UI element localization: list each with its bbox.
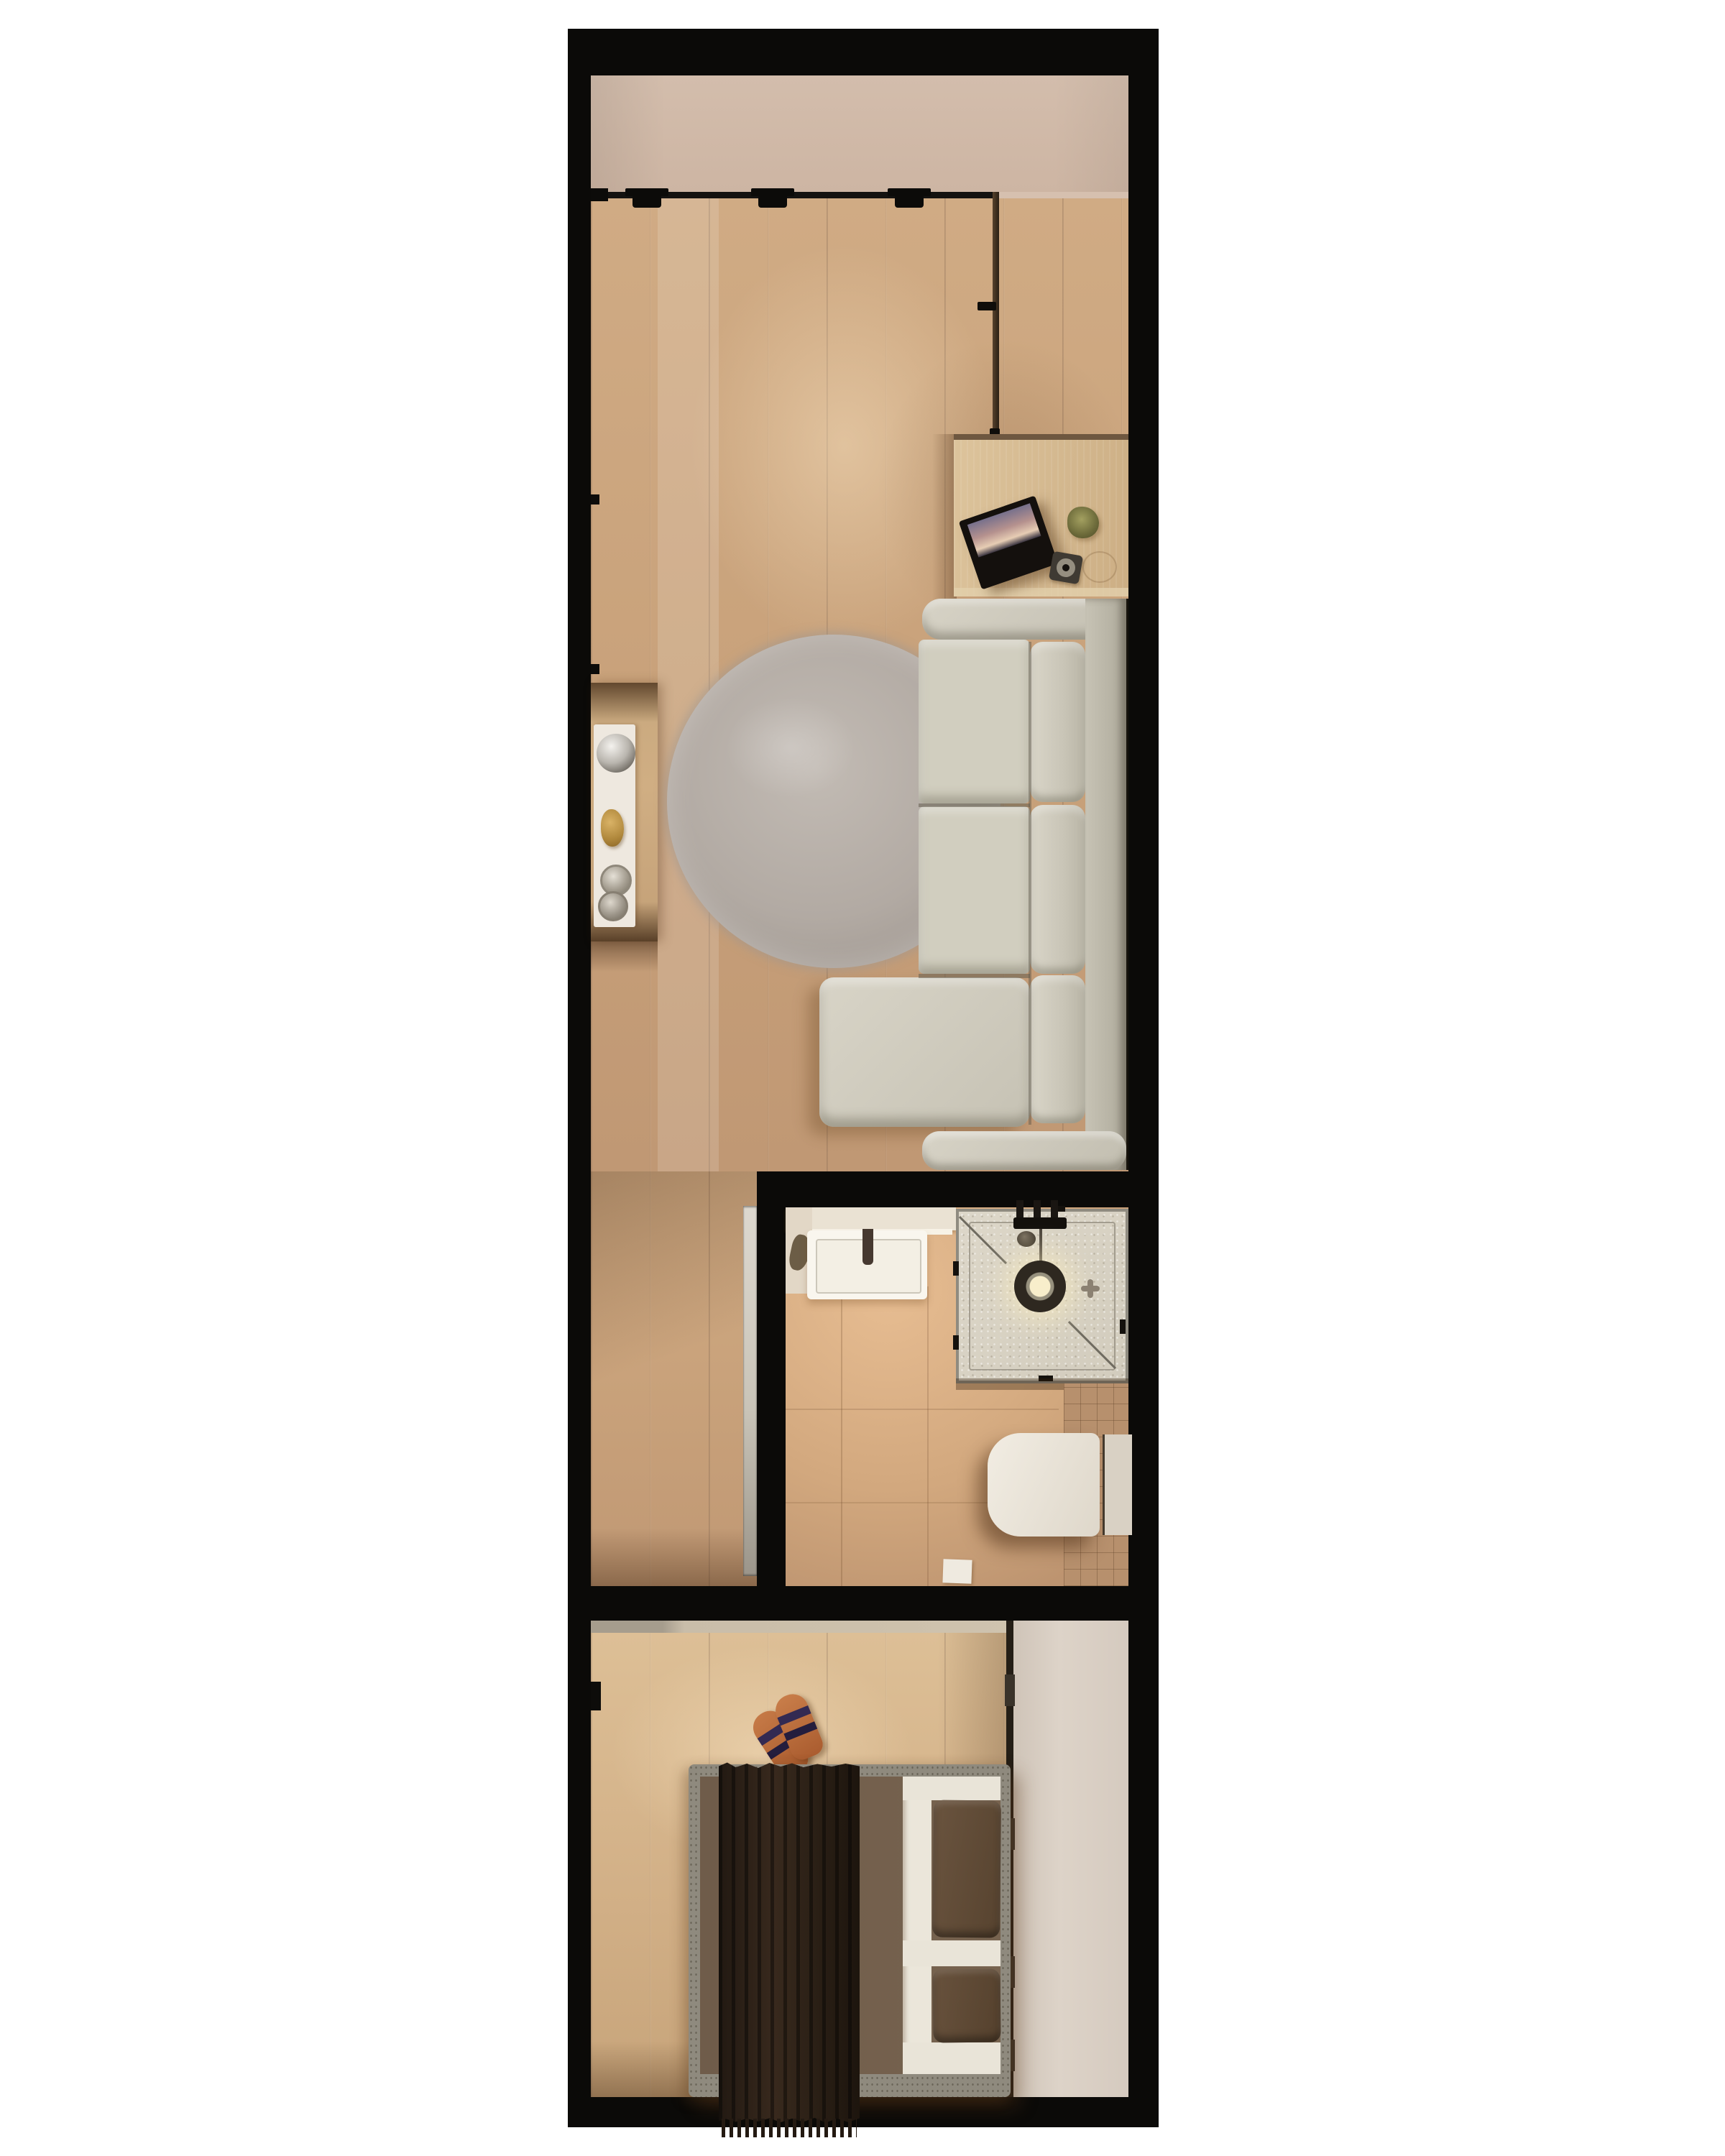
floor-paper [942,1559,972,1583]
wall-pin-icon [591,664,599,674]
table-floor-shadow [932,434,957,625]
sofa-back-pillow [1030,975,1085,1123]
bed-pillow [932,1800,1001,1938]
sofa-seat-cushion [919,640,1030,803]
shower-valve-bar [1013,1217,1067,1229]
mirror-ball-icon [597,734,635,773]
bed-pillow [932,1969,1000,2043]
apartment-plan [568,29,1159,2127]
door-roller-foot [895,196,924,208]
door-handle-icon [977,302,996,310]
door-hinge-icon [591,1682,601,1710]
shower-head-light-icon [1014,1261,1066,1312]
sofa-back-pillow [1030,805,1085,974]
bedroom-threshold [591,1621,1013,1633]
glass-clip-icon [1120,1319,1126,1334]
drain-rosette-icon [1087,1279,1093,1298]
toilet-cistern-panel [1103,1434,1132,1535]
track-end-block [591,188,608,201]
bed-sheet-fold [903,1777,1000,1800]
hallway-shading [591,1171,757,1586]
console-top-shadow [591,683,658,722]
tile-seam [927,1286,929,1586]
glass-icon [598,891,628,921]
floor-plan-canvas [0,0,1725,2156]
bed-sheet-fold [903,2042,1000,2074]
door-roller-foot [758,196,787,208]
slipper-strap [777,1705,811,1726]
sofa-back-pillow [1030,642,1085,802]
sofa-chaise-cushion [819,977,1030,1127]
tile-seam [841,1286,842,1586]
dried-plant-icon [1067,507,1099,538]
shower-valve-stem [1051,1200,1058,1219]
sofa-cushion-seam [919,974,1030,978]
side-table-edge [954,434,1128,440]
balcony-zone-shading [591,75,1128,192]
sofa-back-seam [1029,642,1031,1125]
sofa-armrest-bottom [922,1131,1126,1170]
door-leaf-edge [993,192,999,434]
bed-sheet-band [903,1777,931,2074]
shower-knob-icon [1017,1231,1036,1247]
coaster [1049,551,1083,585]
sofa-cushion-seam [919,803,1030,807]
table-stain [1082,551,1117,583]
throw-blanket [719,1761,860,2124]
door-roller-foot [632,196,661,208]
wardrobe-hinge-icon [1005,1674,1015,1706]
door-roller-icon [888,188,931,196]
slipper-strap [783,1721,817,1741]
rug-sheen [726,697,855,798]
sink-faucet-icon [862,1229,873,1265]
tile-seam [786,1409,1059,1410]
shower-valve-stem [1034,1200,1041,1219]
bed-sheet-fold [903,1940,1000,1966]
glass-clip-icon [953,1261,959,1276]
door-roller-icon [625,188,668,196]
glass-clip-icon [953,1335,959,1350]
toilet [988,1433,1100,1537]
pocket-sliding-door [743,1206,757,1576]
wardrobe [1013,1621,1128,2097]
console-floor-shadow [591,941,658,972]
side-table-bevel [954,588,1128,596]
shower-valve-stem [1016,1200,1023,1219]
wall-pin-icon [591,494,599,505]
gold-ornament-icon [601,809,624,847]
throw-blanket-fringe [722,2119,857,2137]
sofa-back-frame [1085,599,1126,1170]
sofa-seat-cushion [919,806,1030,974]
door-roller-icon [751,188,794,196]
